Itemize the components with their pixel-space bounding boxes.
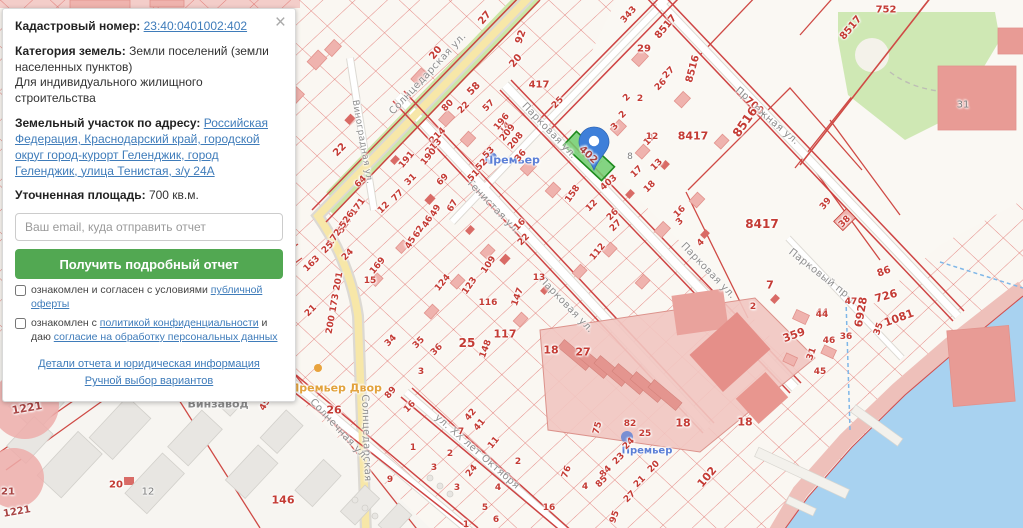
manual-select-link[interactable]: Ручной выбор вариантов <box>85 375 213 387</box>
privacy-consent-text: ознакомлен с политикой конфиденциальност… <box>31 317 283 345</box>
privacy-consent-row: ознакомлен с политикой конфиденциальност… <box>15 317 283 345</box>
area-row: Уточненная площадь: 700 кв.м. <box>15 188 283 204</box>
privacy-consent-prefix: ознакомлен с <box>31 317 100 329</box>
parcel-info-panel: × Кадастровый номер: 23:40:0401002:402 К… <box>2 8 296 402</box>
privacy-policy-link[interactable]: политикой конфиденциальности <box>100 317 259 329</box>
close-icon[interactable]: × <box>275 13 286 32</box>
address-row: Земельный участок по адресу: Российская … <box>15 116 283 179</box>
offer-consent-checkbox[interactable] <box>15 285 26 296</box>
area-value: 700 кв.м. <box>149 188 199 202</box>
land-category-row: Категория земель: Земли поселений (земли… <box>15 44 283 107</box>
category-label: Категория земель: <box>15 44 126 58</box>
personal-data-link[interactable]: согласие на обработку персональных данны… <box>54 331 278 343</box>
email-input[interactable] <box>15 213 283 241</box>
get-report-button[interactable]: Получить подробный отчет <box>15 249 283 279</box>
offer-consent-prefix: ознакомлен и согласен с условиями <box>31 284 211 296</box>
panel-footer-links: Детали отчета и юридическая информация Р… <box>15 357 283 389</box>
marker-center-dot <box>589 136 599 146</box>
offer-consent-text: ознакомлен и согласен с условиями публич… <box>31 284 283 312</box>
address-label: Земельный участок по адресу: <box>15 116 200 130</box>
cadastral-map-page: Солнцедарская ул.СолнцедарскаяВиноградна… <box>0 0 1023 528</box>
category-extra: Для индивидуального жилищного строительс… <box>15 75 283 107</box>
offer-consent-row: ознакомлен и согласен с условиями публич… <box>15 284 283 312</box>
report-details-link[interactable]: Детали отчета и юридическая информация <box>38 358 260 370</box>
area-label: Уточненная площадь: <box>15 188 146 202</box>
privacy-consent-checkbox[interactable] <box>15 318 26 329</box>
cadastral-number-link[interactable]: 23:40:0401002:402 <box>144 19 247 33</box>
cadastral-number-row: Кадастровый номер: 23:40:0401002:402 <box>15 19 283 35</box>
premier-poi-dot <box>489 156 494 161</box>
premier-poi-icon-2 <box>621 431 633 443</box>
cadastral-number-label: Кадастровый номер: <box>15 19 140 33</box>
premier-dvor-poi-icon <box>314 364 322 372</box>
